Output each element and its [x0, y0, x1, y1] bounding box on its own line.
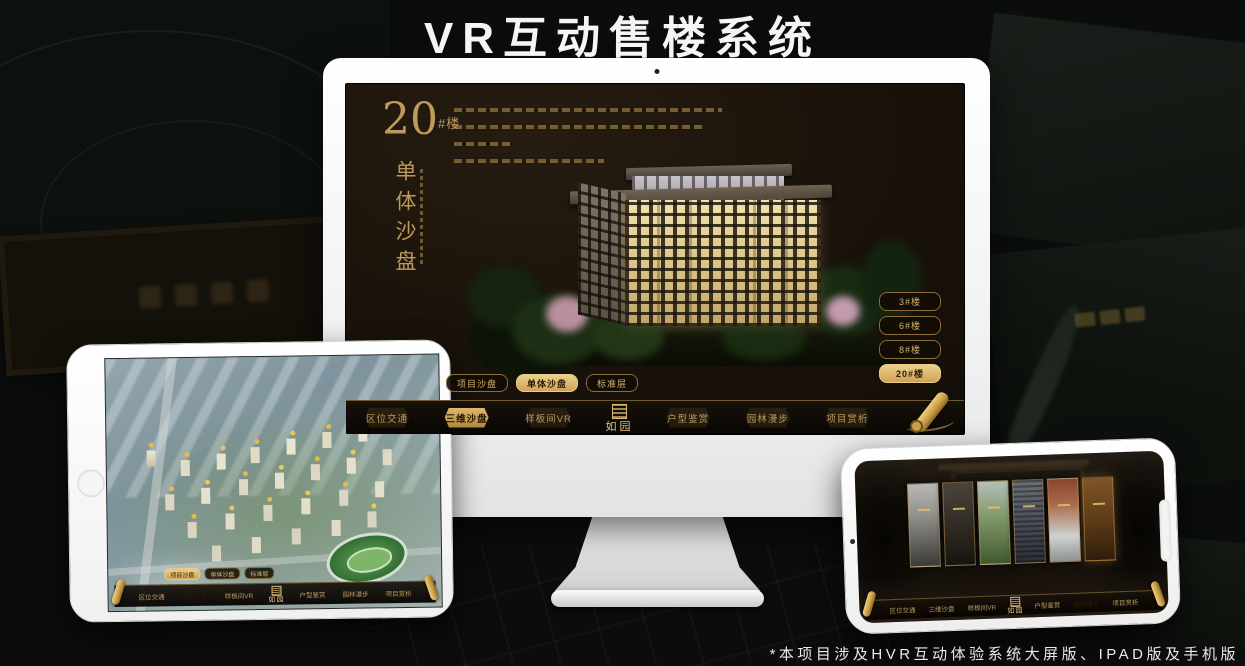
webcam-dot: [654, 69, 659, 74]
nav-item-location[interactable]: 区位交通: [362, 406, 412, 430]
tablet-frame: 项目沙盘 单体沙盘 标准层 区位交通 三维沙盘 样板间VR 如园 户型鉴赏 园林…: [66, 339, 454, 622]
floor-button-3[interactable]: 3#楼: [879, 292, 941, 311]
scene-gallery: [907, 476, 1116, 567]
nav-item-floorplans[interactable]: 户型鉴赏: [1032, 597, 1062, 612]
main-navbar: 区位交通 三维沙盘 样板间VR 如园 户型鉴赏 园林漫步 项目赏析: [346, 400, 964, 434]
brand-logo: 如园: [606, 404, 634, 432]
plaque-glyph: [246, 279, 269, 302]
poster-stage: 20#楼 单体沙盘: [0, 0, 1245, 666]
gallery-panel[interactable]: [977, 480, 1011, 565]
nav-item-project-video[interactable]: 项目赏析: [822, 406, 872, 430]
tablet-device: 项目沙盘 单体沙盘 标准层 区位交通 三维沙盘 样板间VR 如园 户型鉴赏 园林…: [66, 339, 454, 622]
nav-item-project-video[interactable]: 项目赏析: [383, 585, 413, 599]
tab-single-building[interactable]: 单体沙盘: [516, 374, 578, 392]
nav-item-showroom-vr[interactable]: 样板间VR: [223, 588, 256, 602]
tab-single-building[interactable]: 单体沙盘: [204, 567, 240, 580]
gallery-panel[interactable]: [907, 482, 941, 567]
nav-item-showroom-vr[interactable]: 样板间VR: [965, 599, 998, 614]
page-title: VR互动售楼系统: [0, 2, 1245, 66]
nav-item-garden-walk[interactable]: 园林漫步: [1071, 595, 1101, 610]
monitor-stand-neck: [555, 515, 760, 599]
plaque-glyph: [210, 281, 233, 304]
tab-standard-floor[interactable]: 标准层: [244, 567, 274, 579]
plaque-glyph: [138, 286, 161, 309]
nav-item-location[interactable]: 区位交通: [136, 589, 166, 603]
brand-logo-text: 如园: [606, 421, 634, 432]
brand-logo-text: 如园: [1007, 607, 1023, 615]
nav-item-showroom-vr[interactable]: 样板间VR: [521, 406, 576, 430]
building-heading: 20#楼: [382, 98, 460, 142]
background-logo-mark: [1074, 306, 1145, 327]
logo-dash: [1074, 312, 1095, 328]
brand-logo: 如园: [1007, 596, 1024, 615]
scroll-icon[interactable]: [902, 405, 948, 431]
nav-item-garden-walk[interactable]: 园林漫步: [340, 586, 370, 600]
gallery-panel[interactable]: [1082, 476, 1116, 561]
gallery-panel[interactable]: [1012, 479, 1046, 564]
text-line: [454, 108, 722, 112]
footnote-text: *本项目涉及HVR互动体验系统大屏版、IPAD版及手机版: [770, 643, 1239, 664]
nav-item-floorplans[interactable]: 户型鉴赏: [663, 406, 713, 430]
gallery-panel[interactable]: [1047, 478, 1081, 563]
tab-standard-floor[interactable]: 标准层: [586, 374, 638, 392]
nav-item-floorplans[interactable]: 户型鉴赏: [297, 587, 327, 601]
gallery-panel[interactable]: [942, 481, 976, 566]
text-line: [454, 142, 512, 146]
floor-button-group: 3#楼 6#楼 8#楼 20#楼: [879, 292, 941, 388]
background-road-curve: [40, 120, 344, 324]
building-subtitle: 单体沙盘: [390, 160, 420, 280]
aerial-buildings: [147, 450, 156, 466]
nav-item-garden-walk[interactable]: 园林漫步: [743, 406, 793, 430]
floor-button-6[interactable]: 6#楼: [879, 316, 941, 335]
floor-button-8[interactable]: 8#楼: [879, 340, 941, 359]
tab-project-sandbox[interactable]: 项目沙盘: [446, 374, 508, 392]
tab-project-sandbox[interactable]: 项目沙盘: [164, 568, 200, 581]
seal-icon: [271, 585, 281, 595]
subtitle-english-text: [420, 168, 423, 264]
phone-device: 区位交通 三维沙盘 样板间VR 如园 户型鉴赏 园林漫步 项目赏析: [840, 437, 1181, 635]
nav-item-3d-sandbox[interactable]: 三维沙盘: [926, 600, 956, 615]
building-markers: [148, 442, 153, 447]
monitor-stand-base: [551, 590, 764, 607]
tablet-screen: 项目沙盘 单体沙盘 标准层 区位交通 三维沙盘 样板间VR 如园 户型鉴赏 园林…: [104, 353, 443, 612]
tablet-view-tabs: 项目沙盘 单体沙盘 标准层: [164, 567, 274, 581]
building-number: 20: [382, 94, 438, 145]
logo-dash: [1124, 306, 1145, 322]
phone-screen: 区位交通 三维沙盘 样板间VR 如园 户型鉴赏 园林漫步 项目赏析: [854, 451, 1168, 624]
building-3d-model[interactable]: [474, 148, 916, 366]
nav-item-project-video[interactable]: 项目赏析: [1110, 594, 1140, 609]
text-line: [454, 125, 706, 129]
phone-frame: 区位交通 三维沙盘 样板间VR 如园 户型鉴赏 园林漫步 项目赏析: [840, 437, 1181, 635]
plaque-glyph: [174, 283, 197, 306]
nav-item-3d-sandbox[interactable]: 三维沙盘: [180, 588, 210, 602]
nav-item-location[interactable]: 区位交通: [887, 602, 917, 617]
building-side-face: [578, 182, 626, 325]
seal-icon: [612, 404, 627, 419]
brand-logo: 如园: [268, 585, 284, 603]
floor-button-20[interactable]: 20#楼: [879, 364, 941, 383]
seal-icon: [1010, 596, 1020, 606]
brand-logo-text: 如园: [268, 596, 284, 603]
view-tab-group: 项目沙盘 单体沙盘 标准层: [446, 374, 638, 392]
tablet-navbar: 区位交通 三维沙盘 样板间VR 如园 户型鉴赏 园林漫步 项目赏析: [114, 581, 435, 607]
nav-item-3d-sandbox[interactable]: 三维沙盘: [442, 406, 492, 430]
building-front-face: [625, 200, 821, 326]
phone-camera-dot: [850, 539, 855, 544]
logo-dash: [1099, 309, 1120, 325]
blossom-tree: [826, 296, 860, 326]
home-button[interactable]: [77, 469, 105, 497]
phone-side-pill: [1159, 499, 1172, 561]
